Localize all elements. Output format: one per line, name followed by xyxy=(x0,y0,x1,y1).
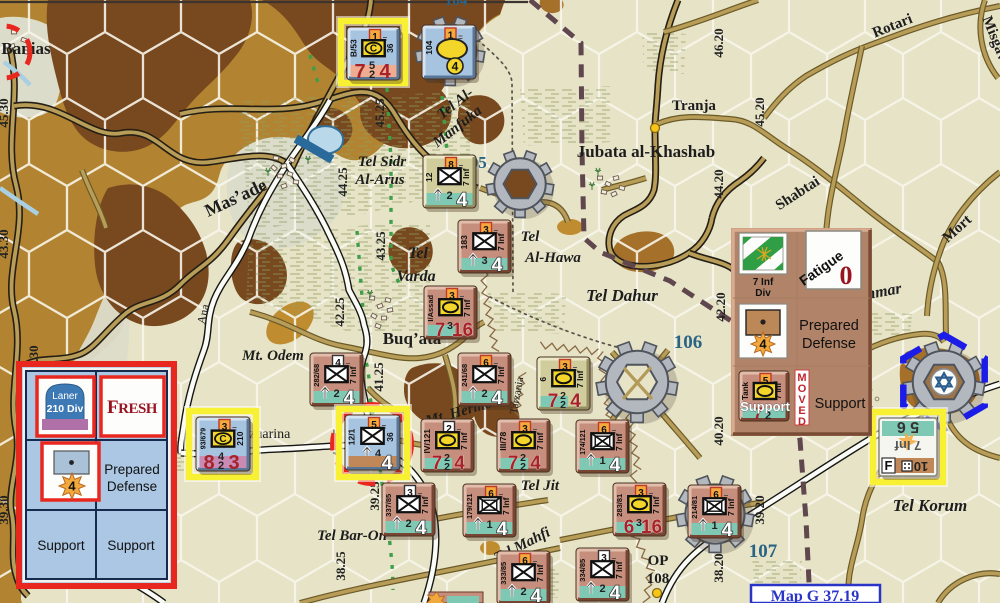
svg-text:43.25: 43.25 xyxy=(373,231,388,261)
svg-text:45.30: 45.30 xyxy=(0,98,11,127)
svg-text:4: 4 xyxy=(610,454,621,476)
svg-text:2: 2 xyxy=(369,69,375,81)
svg-text:4: 4 xyxy=(457,189,468,211)
svg-text:4: 4 xyxy=(759,337,767,352)
svg-text:Defense: Defense xyxy=(107,479,157,494)
svg-text:1: 1 xyxy=(486,519,492,531)
svg-text:Tel Korum: Tel Korum xyxy=(893,496,967,515)
svg-text:4: 4 xyxy=(454,453,465,474)
svg-text:2: 2 xyxy=(560,399,566,411)
svg-text:Al-Arus: Al-Arus xyxy=(354,172,404,188)
svg-text:F: F xyxy=(885,458,893,473)
svg-text:333/85: 333/85 xyxy=(499,562,508,585)
svg-text:282/68: 282/68 xyxy=(312,364,321,387)
svg-text:12/1: 12/1 xyxy=(347,428,357,445)
svg-text:Tel Bar-On: Tel Bar-On xyxy=(317,528,387,544)
svg-text:Tank: Tank xyxy=(741,381,750,400)
svg-text:Tel Sidr: Tel Sidr xyxy=(358,154,406,170)
svg-text:7 Inf: 7 Inf xyxy=(651,496,661,514)
svg-text:42.25: 42.25 xyxy=(332,297,347,327)
svg-text:214/81: 214/81 xyxy=(690,496,699,519)
svg-text:45.20: 45.20 xyxy=(752,97,767,126)
svg-text:7: 7 xyxy=(354,61,365,83)
svg-text:210: 210 xyxy=(235,431,245,445)
svg-text:IV/121: IV/121 xyxy=(422,429,432,454)
svg-text:OP: OP xyxy=(648,553,669,569)
svg-text:Support: Support xyxy=(37,538,85,553)
svg-text:36: 36 xyxy=(385,43,395,53)
svg-text:Jubata al-Khashab: Jubata al-Khashab xyxy=(577,142,715,161)
svg-text:183: 183 xyxy=(459,235,469,249)
svg-text:39.20: 39.20 xyxy=(752,495,767,524)
svg-text:44.20: 44.20 xyxy=(711,169,726,198)
svg-text:179/121: 179/121 xyxy=(467,494,474,519)
svg-text:7 Inf: 7 Inf xyxy=(894,438,921,453)
svg-text:3: 3 xyxy=(481,255,487,267)
svg-text:FRESH: FRESH xyxy=(107,397,158,418)
svg-text:7: 7 xyxy=(432,453,443,474)
svg-text:334/85: 334/85 xyxy=(578,559,587,582)
svg-text:2: 2 xyxy=(218,460,224,472)
svg-text:104: 104 xyxy=(445,0,468,9)
svg-text:16: 16 xyxy=(641,517,662,538)
svg-text:44.25: 44.25 xyxy=(335,167,350,197)
svg-text:4: 4 xyxy=(68,479,76,494)
svg-text:7 Inf: 7 Inf xyxy=(496,233,506,251)
svg-text:Prepared: Prepared xyxy=(799,318,859,334)
svg-text:Tel: Tel xyxy=(408,245,428,262)
svg-text:4: 4 xyxy=(610,582,621,603)
svg-text:Prepared: Prepared xyxy=(104,462,160,477)
svg-text:4: 4 xyxy=(379,61,391,83)
svg-text:6: 6 xyxy=(538,377,548,382)
svg-text:2: 2 xyxy=(446,190,452,202)
svg-text:7 Inf: 7 Inf xyxy=(753,277,774,288)
svg-text:III/78: III/78 xyxy=(498,432,508,451)
svg-text:7 Inf: 7 Inf xyxy=(459,432,469,450)
svg-text:43.30: 43.30 xyxy=(0,229,11,258)
svg-text:4: 4 xyxy=(497,518,508,540)
svg-text:41.25: 41.25 xyxy=(371,362,386,392)
svg-text:Map G 37.19: Map G 37.19 xyxy=(771,588,859,603)
svg-text:Defense: Defense xyxy=(802,336,856,352)
svg-text:7 Inf: 7 Inf xyxy=(462,299,472,317)
svg-text:2: 2 xyxy=(599,583,605,595)
svg-text:7: 7 xyxy=(548,391,559,412)
svg-text:Div: Div xyxy=(755,288,771,299)
svg-text:7: 7 xyxy=(508,453,519,474)
svg-text:108: 108 xyxy=(647,571,670,587)
svg-text:38.25: 38.25 xyxy=(333,551,348,581)
svg-text:7 Inf: 7 Inf xyxy=(496,366,506,384)
svg-text:2: 2 xyxy=(333,388,339,400)
svg-text:2: 2 xyxy=(520,586,526,598)
svg-text:7 Inf: 7 Inf xyxy=(726,498,736,516)
svg-text:Support: Support xyxy=(740,399,790,414)
svg-text:7 Inf: 7 Inf xyxy=(614,561,624,579)
svg-text:4: 4 xyxy=(452,60,459,74)
svg-text:4: 4 xyxy=(722,519,733,541)
svg-text:Laner: Laner xyxy=(52,391,78,402)
svg-text:3: 3 xyxy=(228,452,239,474)
svg-text:241/68: 241/68 xyxy=(460,364,469,387)
svg-text:Tel: Tel xyxy=(521,229,540,245)
svg-text:210 Div: 210 Div xyxy=(47,403,84,415)
svg-text:39.30: 39.30 xyxy=(0,495,11,524)
svg-text:40.20: 40.20 xyxy=(711,416,726,445)
svg-text:4: 4 xyxy=(492,387,503,409)
svg-text:283/81: 283/81 xyxy=(615,494,624,517)
svg-text:7 Inf: 7 Inf xyxy=(461,168,471,186)
svg-text:10: 10 xyxy=(914,459,928,474)
svg-text:2: 2 xyxy=(520,461,526,473)
svg-text:1: 1 xyxy=(599,455,605,467)
svg-text:I/Assad: I/Assad xyxy=(426,295,435,322)
svg-text:93/679: 93/679 xyxy=(201,428,208,450)
svg-text:B/53: B/53 xyxy=(349,39,359,57)
svg-text:Al-Hawa: Al-Hawa xyxy=(524,250,581,266)
svg-text:C: C xyxy=(219,434,226,445)
svg-text:Tel Jit: Tel Jit xyxy=(521,478,560,494)
svg-text:C: C xyxy=(370,44,377,55)
svg-text:6: 6 xyxy=(624,517,635,538)
svg-text:Tel Dahur: Tel Dahur xyxy=(586,286,658,305)
svg-text:42.20: 42.20 xyxy=(713,292,728,321)
svg-text:Support: Support xyxy=(815,396,866,412)
svg-text:7 Inf: 7 Inf xyxy=(535,564,545,582)
svg-text:7 Inf: 7 Inf xyxy=(614,433,624,451)
svg-text:45.25: 45.25 xyxy=(372,98,387,128)
svg-text:7 Inf: 7 Inf xyxy=(501,497,511,515)
svg-text:107: 107 xyxy=(749,541,778,562)
svg-text:4: 4 xyxy=(531,585,542,603)
svg-text:7: 7 xyxy=(435,320,446,341)
svg-text:4: 4 xyxy=(492,254,503,276)
svg-text:4: 4 xyxy=(382,452,393,474)
svg-text:106: 106 xyxy=(674,332,703,353)
svg-text:Mt. Odem: Mt. Odem xyxy=(241,348,304,364)
svg-text:4: 4 xyxy=(570,391,581,412)
svg-text:7 Inf: 7 Inf xyxy=(575,370,585,388)
svg-text:337/85: 337/85 xyxy=(384,494,393,517)
svg-text:Tranja: Tranja xyxy=(672,98,716,114)
svg-text:Varda: Varda xyxy=(396,268,435,285)
svg-text:2: 2 xyxy=(405,518,411,530)
svg-text:12: 12 xyxy=(424,172,434,182)
svg-text:2: 2 xyxy=(444,461,450,473)
svg-text:Support: Support xyxy=(107,538,155,553)
svg-text:5 6: 5 6 xyxy=(897,418,919,435)
svg-text:46.20: 46.20 xyxy=(711,28,726,57)
svg-text:1: 1 xyxy=(711,520,717,532)
svg-text:38.20: 38.20 xyxy=(711,553,726,582)
svg-text:D: D xyxy=(798,416,806,428)
svg-text:4: 4 xyxy=(416,517,427,539)
svg-text:16: 16 xyxy=(452,320,473,341)
svg-text:8: 8 xyxy=(203,452,214,474)
svg-text:0: 0 xyxy=(840,261,853,290)
svg-text:4: 4 xyxy=(530,453,541,474)
svg-text:7 Inf: 7 Inf xyxy=(420,496,430,514)
svg-text:36: 36 xyxy=(385,432,395,442)
svg-text:7 Inf: 7 Inf xyxy=(535,432,545,450)
svg-text:7 Inf: 7 Inf xyxy=(348,366,358,384)
svg-text:104: 104 xyxy=(424,40,434,54)
svg-text:174/121: 174/121 xyxy=(580,430,587,455)
svg-text:2: 2 xyxy=(481,388,487,400)
